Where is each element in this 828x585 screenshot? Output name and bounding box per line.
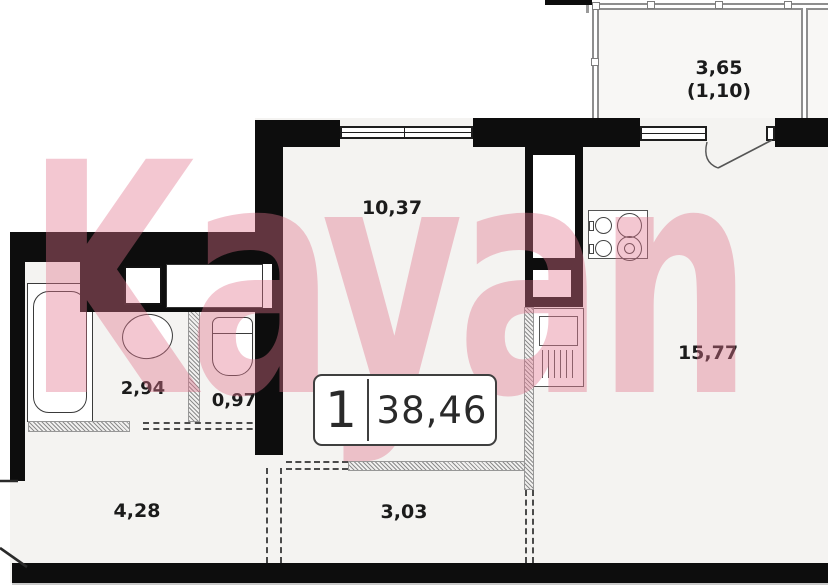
window-glass-line — [342, 132, 471, 133]
stove-icon — [588, 210, 648, 259]
dashed-opening-living — [286, 461, 348, 470]
toilet-tank-line — [213, 333, 252, 334]
balcony-rail-right — [801, 8, 808, 118]
area-label-living: 10,37 — [352, 198, 432, 219]
balcony-rail-node — [715, 1, 723, 9]
dashed-opening-bath — [143, 422, 263, 430]
plan-badge: 1 38,46 — [313, 374, 497, 446]
partition-hatched-kitchen-room — [524, 307, 534, 490]
badge-total-area: 38,46 — [369, 376, 495, 444]
balcony-area-reduced: (1,10) — [672, 80, 766, 103]
wall-bath-top — [10, 232, 263, 262]
stove-burner — [595, 240, 612, 257]
bathtub-basin — [33, 291, 87, 413]
wall-left — [10, 232, 25, 481]
wall-top-right — [775, 118, 828, 147]
wall-bottom — [12, 563, 828, 583]
window-balcony — [640, 126, 707, 141]
balcony-rail-node — [647, 1, 655, 9]
window-living — [340, 126, 473, 139]
bath-niche-small — [124, 266, 162, 305]
kitchen-unit-icon — [531, 308, 584, 387]
partition-hatched-under-tub — [28, 421, 130, 432]
kitchen-unit-grill — [542, 350, 574, 378]
badge-room-count: 1 — [315, 376, 367, 444]
floorplan-canvas: 10,37 3,65 (1,10) 15,77 2,94 0,97 4,28 3… — [0, 0, 828, 585]
bath-niche-large — [166, 264, 263, 308]
balcony-rail-top — [594, 3, 828, 10]
dashed-opening-corridor-room — [525, 490, 534, 563]
wall-slot — [263, 264, 272, 308]
window-divider — [404, 128, 405, 137]
wall-top-stub — [545, 0, 592, 5]
balcony-door-jamb — [766, 126, 775, 141]
area-label-corridor: 3,03 — [369, 502, 439, 523]
area-label-balcony: 3,65 (1,10) — [672, 57, 766, 103]
area-label-wc: 0,97 — [205, 390, 263, 411]
stove-knob — [589, 221, 594, 231]
kitchen-unit-panel — [539, 316, 578, 346]
window-glass-line — [642, 133, 705, 134]
area-label-hallway: 4,28 — [102, 501, 172, 522]
balcony-rail-node — [592, 2, 600, 10]
partition-hatched-living-corridor — [348, 461, 526, 471]
area-label-bathroom: 2,94 — [110, 378, 176, 399]
balcony-rail-node — [784, 1, 792, 9]
toilet-icon — [212, 317, 253, 376]
stove-burner — [617, 213, 642, 238]
balcony-area-value: 3,65 — [672, 57, 766, 80]
stove-knob — [589, 244, 594, 254]
stove-burner — [595, 217, 612, 234]
area-label-room-main: 15,77 — [668, 343, 748, 364]
dashed-opening-hallway-corridor — [266, 468, 282, 563]
vent-shaft-opening-lower — [533, 270, 571, 297]
vent-shaft-opening-upper — [533, 155, 575, 258]
balcony-rail-node — [591, 58, 599, 66]
stove-burner-inner-ring — [624, 243, 635, 254]
